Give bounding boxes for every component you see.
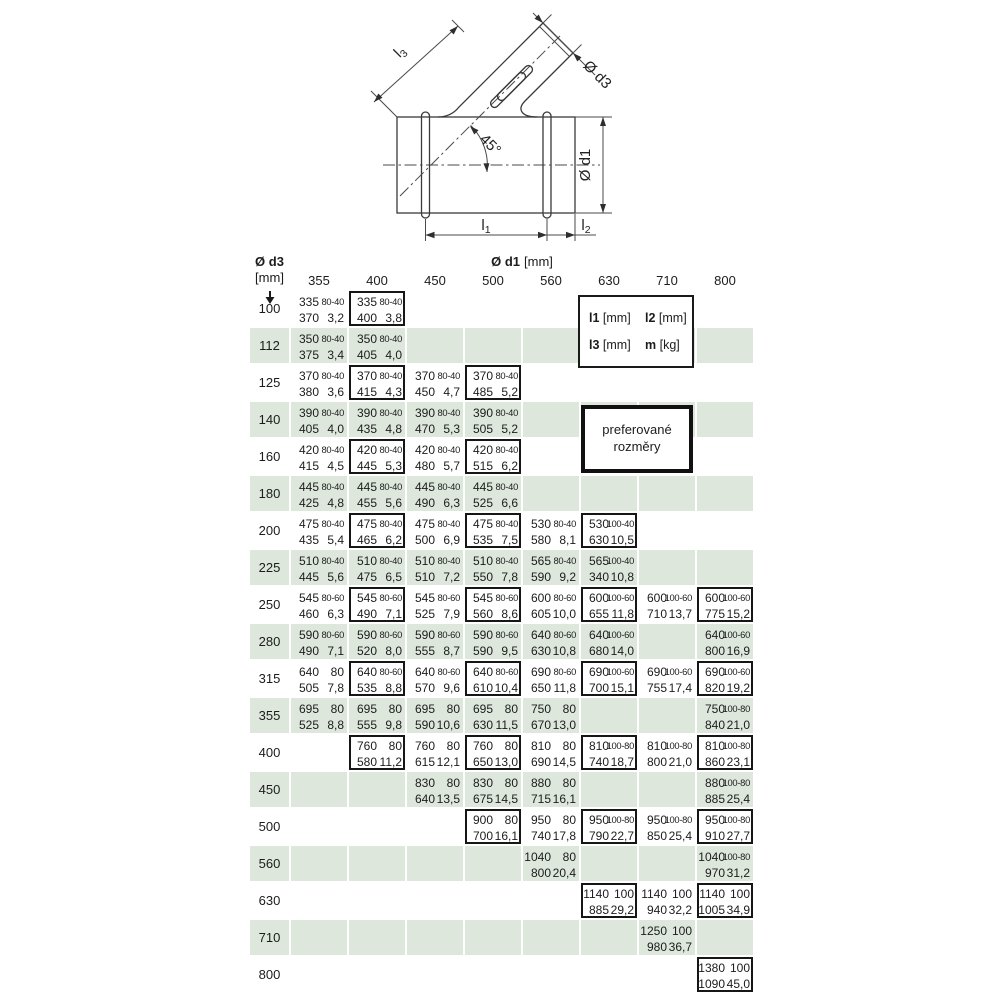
value-m: 6,6 <box>493 496 521 510</box>
value-l3: 940 <box>639 903 667 917</box>
row-label-560: 560 <box>250 846 291 883</box>
value-l2: 80-60 <box>319 592 347 603</box>
value-l1: 600 <box>581 591 609 605</box>
row-axis-unit: [mm] <box>255 270 284 285</box>
value-l2: 80 <box>435 776 463 790</box>
value-l3: 700 <box>465 829 493 843</box>
col-header-500: 500 <box>465 272 523 291</box>
value-l2: 80-40 <box>493 444 521 455</box>
value-l3: 510 <box>407 570 435 584</box>
table-cell: 56580-405909,2 <box>523 550 581 587</box>
table-cell-empty <box>523 365 581 402</box>
dim-label-d1: Ø d1 <box>577 149 594 182</box>
table-cell: 8808071516,1 <box>523 772 581 809</box>
value-l2: 80-40 <box>493 518 521 529</box>
table-cell-empty <box>697 328 755 365</box>
value-l1: 420 <box>291 443 319 457</box>
value-m: 5,3 <box>435 422 463 436</box>
value-l3: 425 <box>291 496 319 510</box>
value-l3: 580 <box>349 755 377 769</box>
value-l1: 640 <box>407 665 435 679</box>
value-l3: 445 <box>349 459 377 473</box>
table-cell-empty <box>639 513 697 550</box>
value-l1: 530 <box>523 517 551 531</box>
table-cell: 114010094032,2 <box>639 883 697 920</box>
table-cell: 8108069014,5 <box>523 735 581 772</box>
value-l1: 565 <box>581 554 609 568</box>
table-cell: 125010098036,7 <box>639 920 697 957</box>
value-l1: 690 <box>523 665 551 679</box>
row-label-100: 100 <box>250 291 291 328</box>
value-l3: 710 <box>639 607 667 621</box>
value-m: 16,1 <box>493 829 521 843</box>
value-l3: 435 <box>349 422 377 436</box>
value-l2: 80-40 <box>319 333 347 344</box>
value-l1: 810 <box>581 739 609 753</box>
table-cell-empty <box>523 402 581 439</box>
value-l1: 1140 <box>639 887 667 901</box>
value-l1: 695 <box>291 702 319 716</box>
value-l3: 775 <box>697 607 725 621</box>
dim-label-l2: l2 <box>581 217 590 236</box>
table-cell: 47580-405357,5 <box>465 513 523 550</box>
branch-bead-2 <box>496 64 534 102</box>
value-l3: 740 <box>581 755 609 769</box>
col-axis-title: Ø d1 <box>491 254 520 269</box>
value-l1: 640 <box>697 628 725 642</box>
value-m: 36,7 <box>667 940 695 954</box>
value-l1: 475 <box>407 517 435 531</box>
value-l1: 335 <box>349 295 377 309</box>
col-header-630: 630 <box>581 272 639 291</box>
table-cell: 64080-605709,6 <box>407 661 465 698</box>
table-cell: 37080-404855,2 <box>465 365 523 402</box>
value-l3: 435 <box>291 533 319 547</box>
value-m: 10,0 <box>551 607 579 621</box>
value-l2: 80-40 <box>377 444 405 455</box>
value-l2: 80-60 <box>551 666 579 677</box>
table-cell-empty <box>581 846 639 883</box>
table-cell-empty <box>407 328 465 365</box>
value-l1: 640 <box>291 665 319 679</box>
table-cell: 8308064013,5 <box>407 772 465 809</box>
col-header-400: 400 <box>349 272 407 291</box>
value-l2: 80 <box>551 850 579 864</box>
value-m: 11,5 <box>493 718 521 732</box>
table-cell: 42080-404805,7 <box>407 439 465 476</box>
value-l3: 690 <box>523 755 551 769</box>
value-l1: 640 <box>523 628 551 642</box>
value-l1: 690 <box>639 665 667 679</box>
value-l3: 680 <box>581 644 609 658</box>
table-cell-empty <box>407 957 465 994</box>
value-m: 9,6 <box>435 681 463 695</box>
value-l1: 640 <box>349 665 377 679</box>
value-m: 5,6 <box>319 570 347 584</box>
value-m: 10,5 <box>609 533 637 547</box>
value-l3: 640 <box>407 792 435 806</box>
main-pipe <box>383 112 600 218</box>
value-l2: 100 <box>667 924 695 938</box>
value-m: 25,4 <box>725 792 753 806</box>
table-cell: 950100-8085025,4 <box>639 809 697 846</box>
legend-m: m [kg] <box>645 338 688 352</box>
value-m: 17,4 <box>667 681 695 695</box>
table-cell-empty <box>465 920 523 957</box>
value-l1: 640 <box>581 628 609 642</box>
value-l3: 610 <box>465 681 493 695</box>
value-l2: 100-60 <box>725 629 753 640</box>
value-l1: 370 <box>291 369 319 383</box>
table-cell: 47580-404355,4 <box>291 513 349 550</box>
value-m: 10,8 <box>551 644 579 658</box>
value-l3: 820 <box>697 681 725 695</box>
value-l1: 545 <box>291 591 319 605</box>
col-header-800: 800 <box>697 272 755 291</box>
table-cell-empty <box>349 920 407 957</box>
table-cell: 640100-6080016,9 <box>697 624 755 661</box>
table-cell-empty <box>523 476 581 513</box>
value-l2: 80-40 <box>377 296 405 307</box>
value-l1: 950 <box>523 813 551 827</box>
value-m: 21,0 <box>725 718 753 732</box>
table-cell-empty <box>291 846 349 883</box>
value-m: 6,3 <box>435 496 463 510</box>
value-m: 16,9 <box>725 644 753 658</box>
table-cell: 8308067514,5 <box>465 772 523 809</box>
dim-label-l1: l1 <box>481 217 490 236</box>
value-l2: 80-40 <box>377 407 405 418</box>
table-cell: 530100-4063010,5 <box>581 513 639 550</box>
value-l3: 655 <box>581 607 609 621</box>
value-l2: 80-60 <box>377 666 405 677</box>
table-cell-empty <box>523 920 581 957</box>
table-cell-empty <box>523 328 581 365</box>
value-m: 3,4 <box>319 348 347 362</box>
value-m: 21,0 <box>667 755 695 769</box>
value-m: 31,2 <box>725 866 753 880</box>
table-cell: 880100-8088525,4 <box>697 772 755 809</box>
value-l2: 100 <box>725 887 753 901</box>
table-cell-empty <box>291 957 349 994</box>
value-l3: 525 <box>291 718 319 732</box>
table-cell: 600100-6071013,7 <box>639 587 697 624</box>
value-m: 5,2 <box>493 422 521 436</box>
table-cell: 37080-403803,6 <box>291 365 349 402</box>
value-l3: 480 <box>407 459 435 473</box>
value-l1: 1040 <box>697 850 725 864</box>
table-cell-empty <box>407 846 465 883</box>
row-label-125: 125 <box>250 365 291 402</box>
value-m: 14,0 <box>609 644 637 658</box>
dim-l1-l2: l1 l2 <box>426 214 597 241</box>
table-cell: 640805057,8 <box>291 661 349 698</box>
table-cell-empty <box>465 846 523 883</box>
value-l3: 340 <box>581 570 609 584</box>
value-l3: 605 <box>523 607 551 621</box>
table-cell: 810100-8080021,0 <box>639 735 697 772</box>
value-l1: 390 <box>407 406 435 420</box>
table-cell: 69080-6065011,8 <box>523 661 581 698</box>
value-l2: 80-40 <box>319 296 347 307</box>
value-l3: 715 <box>523 792 551 806</box>
row-label-450: 450 <box>250 772 291 809</box>
value-l1: 565 <box>523 554 551 568</box>
value-l3: 465 <box>349 533 377 547</box>
table-cell-empty <box>407 809 465 846</box>
value-l3: 490 <box>291 644 319 658</box>
table-cell: 59080-605909,5 <box>465 624 523 661</box>
table-cell-empty <box>523 883 581 920</box>
table-cell-empty <box>349 772 407 809</box>
value-l1: 1040 <box>523 850 551 864</box>
value-l2: 100-80 <box>725 814 753 825</box>
table-cell: 59080-605558,7 <box>407 624 465 661</box>
value-m: 5,3 <box>377 459 405 473</box>
value-l2: 80-40 <box>377 333 405 344</box>
value-l1: 600 <box>639 591 667 605</box>
value-l1: 370 <box>465 369 493 383</box>
table-cell: 640100-6068014,0 <box>581 624 639 661</box>
value-l2: 80 <box>493 739 521 753</box>
value-l2: 80-40 <box>319 518 347 529</box>
table-cell: 690100-6082019,2 <box>697 661 755 698</box>
table-cell: 950100-8079022,7 <box>581 809 639 846</box>
value-m: 11,8 <box>609 607 637 621</box>
value-m: 7,1 <box>319 644 347 658</box>
table-cell: 64080-6063010,8 <box>523 624 581 661</box>
value-l2: 80-40 <box>435 518 463 529</box>
value-l1: 510 <box>407 554 435 568</box>
value-m: 13,5 <box>435 792 463 806</box>
value-l2: 80 <box>377 702 405 716</box>
table-cell-empty <box>465 328 523 365</box>
value-l3: 590 <box>407 718 435 732</box>
value-m: 8,7 <box>435 644 463 658</box>
value-l1: 880 <box>523 776 551 790</box>
value-l1: 690 <box>581 665 609 679</box>
value-m: 17,8 <box>551 829 579 843</box>
table-cell-empty <box>407 291 465 328</box>
value-l2: 80-40 <box>319 407 347 418</box>
table-cell-empty <box>465 883 523 920</box>
value-l2: 100-80 <box>725 740 753 751</box>
value-l1: 420 <box>407 443 435 457</box>
table-cell-empty <box>291 735 349 772</box>
value-l2: 80-40 <box>319 555 347 566</box>
table-cell-empty <box>697 513 755 550</box>
table-cell: 1040100-8097031,2 <box>697 846 755 883</box>
value-l2: 80-40 <box>377 518 405 529</box>
value-l2: 80-60 <box>319 629 347 640</box>
value-l2: 80 <box>493 702 521 716</box>
value-l3: 535 <box>465 533 493 547</box>
dim-label-d3: Ø d3 <box>580 57 615 92</box>
table-cell: 7608061512,1 <box>407 735 465 772</box>
value-m: 18,7 <box>609 755 637 769</box>
value-l3: 455 <box>349 496 377 510</box>
value-m: 5,6 <box>377 496 405 510</box>
table-cell-empty <box>697 550 755 587</box>
value-l3: 555 <box>349 718 377 732</box>
value-l2: 80-40 <box>493 555 521 566</box>
value-l1: 510 <box>349 554 377 568</box>
value-l1: 370 <box>407 369 435 383</box>
value-l2: 80-40 <box>435 407 463 418</box>
table-cell-empty <box>639 772 697 809</box>
value-l3: 800 <box>639 755 667 769</box>
value-l2: 80-40 <box>377 370 405 381</box>
table-cell: 114010088529,2 <box>581 883 639 920</box>
value-m: 8,8 <box>319 718 347 732</box>
value-l2: 80 <box>435 739 463 753</box>
row-label-400: 400 <box>250 735 291 772</box>
value-l3: 470 <box>407 422 435 436</box>
table-cell-empty <box>291 809 349 846</box>
value-m: 12,1 <box>435 755 463 769</box>
value-m: 22,7 <box>609 829 637 843</box>
value-l2: 100-80 <box>609 814 637 825</box>
value-m: 3,8 <box>377 311 405 325</box>
value-m: 10,4 <box>493 681 521 695</box>
value-l1: 810 <box>523 739 551 753</box>
value-l3: 1005 <box>697 903 725 917</box>
value-l2: 100-80 <box>667 814 695 825</box>
value-l1: 950 <box>639 813 667 827</box>
value-l2: 80-60 <box>493 666 521 677</box>
value-l3: 755 <box>639 681 667 695</box>
value-l1: 590 <box>465 628 493 642</box>
value-l2: 80-40 <box>319 444 347 455</box>
value-l1: 695 <box>349 702 377 716</box>
table-cell: 950100-8091027,7 <box>697 809 755 846</box>
table-cell: 47580-405006,9 <box>407 513 465 550</box>
value-l3: 415 <box>349 385 377 399</box>
value-m: 8,6 <box>493 607 521 621</box>
value-l1: 445 <box>465 480 493 494</box>
value-l2: 100-40 <box>609 518 637 529</box>
value-m: 7,2 <box>435 570 463 584</box>
value-m: 7,8 <box>319 681 347 695</box>
table-cell: 44580-404254,8 <box>291 476 349 513</box>
value-l3: 910 <box>697 829 725 843</box>
value-l2: 80 <box>551 702 579 716</box>
branch-bead-1 <box>489 71 527 109</box>
table-cell-empty <box>291 772 349 809</box>
value-m: 3,2 <box>319 311 347 325</box>
row-label-250: 250 <box>250 587 291 624</box>
value-m: 4,3 <box>377 385 405 399</box>
value-l2: 100-60 <box>609 629 637 640</box>
value-l2: 80-60 <box>551 592 579 603</box>
table-cell: 9508074017,8 <box>523 809 581 846</box>
value-m: 15,2 <box>725 607 753 621</box>
table-cell-empty <box>407 883 465 920</box>
value-l2: 80-40 <box>435 444 463 455</box>
value-l3: 580 <box>523 533 551 547</box>
table-cell: 695805258,8 <box>291 698 349 735</box>
table-cell: 42080-405156,2 <box>465 439 523 476</box>
value-l1: 1250 <box>639 924 667 938</box>
value-l1: 510 <box>291 554 319 568</box>
value-l3: 630 <box>581 533 609 547</box>
col-axis-header: Ø d1[mm] <box>291 253 755 272</box>
table-cell-empty <box>639 846 697 883</box>
table-cell: 64080-6061010,4 <box>465 661 523 698</box>
value-l3: 630 <box>523 644 551 658</box>
value-l1: 880 <box>697 776 725 790</box>
table-cell-empty <box>407 920 465 957</box>
value-l2: 80 <box>319 665 347 679</box>
col-header-710: 710 <box>639 272 697 291</box>
value-l1: 420 <box>349 443 377 457</box>
value-l3: 525 <box>407 607 435 621</box>
table-cell: 54580-605608,6 <box>465 587 523 624</box>
value-l1: 830 <box>465 776 493 790</box>
value-l3: 980 <box>639 940 667 954</box>
value-m: 4,5 <box>319 459 347 473</box>
value-l1: 510 <box>465 554 493 568</box>
table-cell-empty <box>581 920 639 957</box>
table-cell: 47580-404656,2 <box>349 513 407 550</box>
value-l1: 390 <box>349 406 377 420</box>
value-l3: 505 <box>465 422 493 436</box>
table-cell-empty <box>349 809 407 846</box>
table-cell: 565100-4034010,8 <box>581 550 639 587</box>
row-label-355: 355 <box>250 698 291 735</box>
row-label-315: 315 <box>250 661 291 698</box>
col-header-450: 450 <box>407 272 465 291</box>
table-cell: 9008070016,1 <box>465 809 523 846</box>
value-l3: 500 <box>407 533 435 547</box>
value-l3: 700 <box>581 681 609 695</box>
value-l1: 1140 <box>697 887 725 901</box>
value-m: 6,5 <box>377 570 405 584</box>
row-label-140: 140 <box>250 402 291 439</box>
value-l3: 570 <box>407 681 435 695</box>
table-cell: 35080-403753,4 <box>291 328 349 365</box>
value-l2: 80-60 <box>377 629 405 640</box>
value-l1: 390 <box>291 406 319 420</box>
row-label-280: 280 <box>250 624 291 661</box>
value-l2: 80 <box>319 702 347 716</box>
value-l2: 80-60 <box>435 629 463 640</box>
value-m: 11,2 <box>377 755 405 769</box>
value-l2: 80-40 <box>319 370 347 381</box>
value-l3: 445 <box>291 570 319 584</box>
value-l3: 850 <box>639 829 667 843</box>
table-cell: 33580-403703,2 <box>291 291 349 328</box>
row-label-630: 630 <box>250 883 291 920</box>
table-cell: 37080-404504,7 <box>407 365 465 402</box>
row-label-800: 800 <box>250 957 291 994</box>
value-l3: 535 <box>349 681 377 695</box>
table-cell-empty <box>523 439 581 476</box>
value-l3: 415 <box>291 459 319 473</box>
table-cell: 35080-404054,0 <box>349 328 407 365</box>
value-l3: 380 <box>291 385 319 399</box>
value-l1: 350 <box>349 332 377 346</box>
value-l1: 695 <box>407 702 435 716</box>
value-l1: 950 <box>581 813 609 827</box>
legend-l2: l2 [mm] <box>645 311 688 325</box>
value-m: 10,6 <box>435 718 463 732</box>
value-l2: 80 <box>435 702 463 716</box>
value-l1: 545 <box>465 591 493 605</box>
value-l3: 490 <box>407 496 435 510</box>
legend-l3: l3 [mm] <box>589 338 645 352</box>
value-m: 4,0 <box>377 348 405 362</box>
